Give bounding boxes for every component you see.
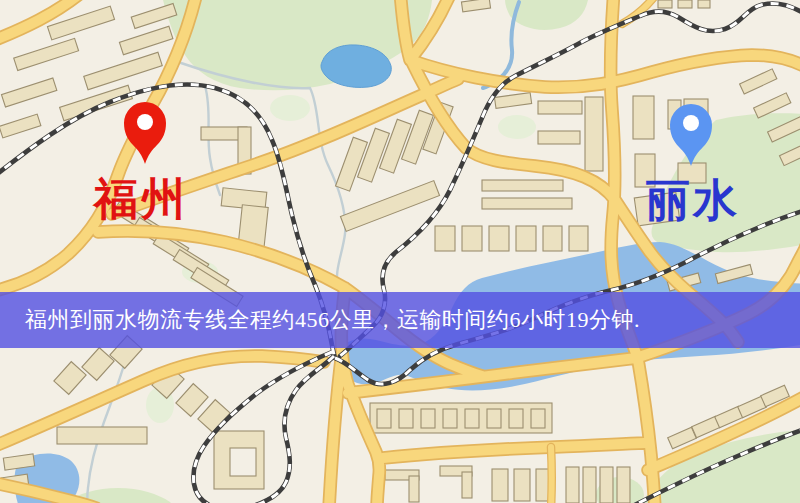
map-image: 福州到丽水物流专线全程约456公里，运输时间约6小时19分钟. 福州 丽水 [0,0,800,503]
destination-city-label: 丽水 [646,179,740,223]
origin-pin-icon [121,98,169,166]
map-canvas [0,0,800,503]
destination-pin-icon [667,100,715,168]
route-info-text: 福州到丽水物流专线全程约456公里，运输时间约6小时19分钟. [25,309,640,331]
origin-city-label: 福州 [94,178,188,222]
route-info-banner: 福州到丽水物流专线全程约456公里，运输时间约6小时19分钟. [0,292,800,348]
